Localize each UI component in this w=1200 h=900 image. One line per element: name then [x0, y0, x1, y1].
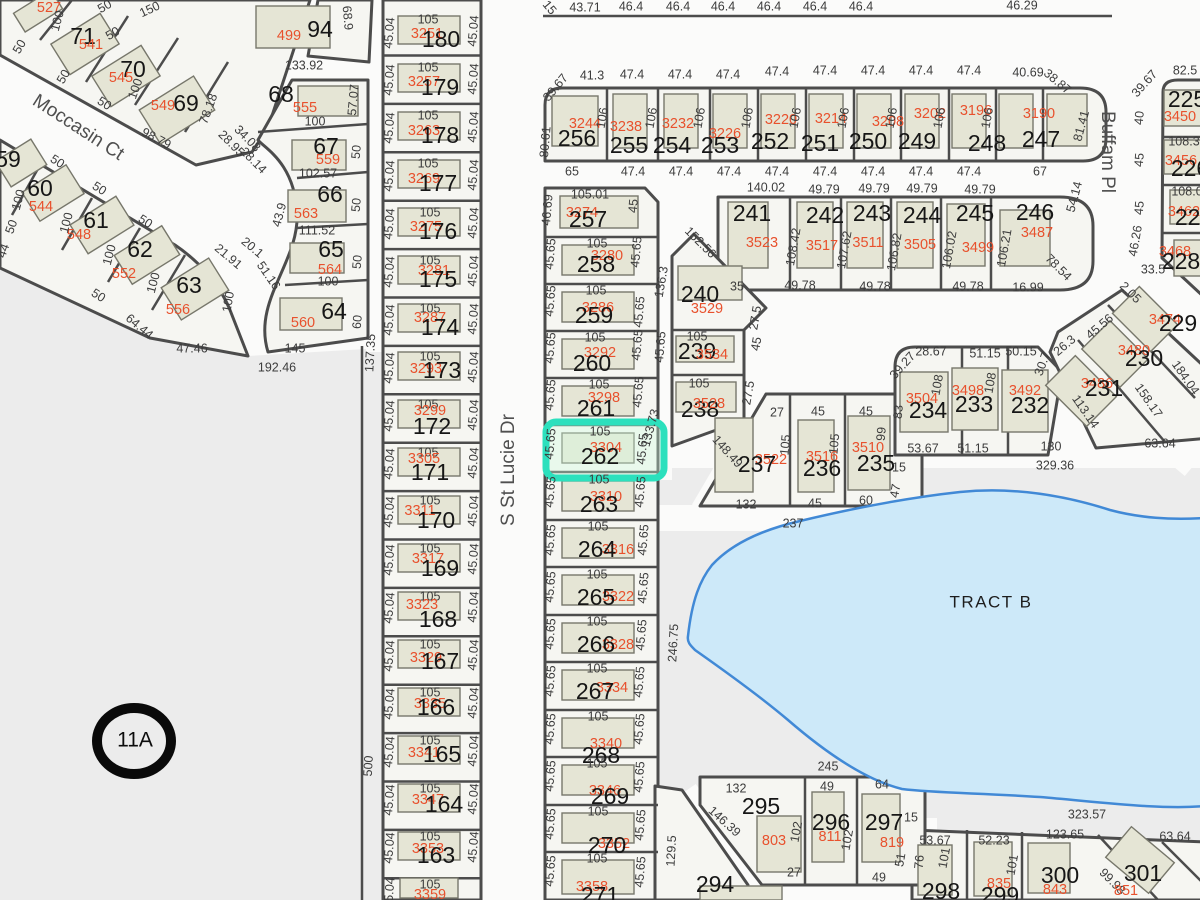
parcel-label-176[interactable]: 176: [419, 218, 457, 244]
parcel-label-174[interactable]: 174: [421, 314, 460, 340]
address-label-811: 811: [818, 829, 841, 845]
parcel-label-228[interactable]: 228: [1162, 248, 1200, 274]
dimension-label: 45.04: [465, 447, 482, 479]
address-label-560: 560: [291, 315, 315, 331]
dimension-label: 45.65: [635, 524, 652, 556]
street-name: Buffam Pl: [1097, 111, 1118, 193]
dimension-label: 45.65: [631, 761, 648, 793]
dimension-label: 45.04: [465, 831, 482, 863]
parcel-label-243[interactable]: 243: [853, 200, 891, 226]
address-label-563: 563: [294, 206, 318, 222]
parcel-label-173[interactable]: 173: [423, 357, 461, 383]
dimension-label: 47.4: [813, 164, 837, 178]
dimension-label: 49.78: [952, 279, 983, 293]
address-label-3528: 3528: [693, 396, 725, 412]
parcel-label-163[interactable]: 163: [417, 842, 455, 868]
dimension-label: 47.4: [861, 164, 885, 178]
dimension-label: 105: [587, 661, 608, 675]
dimension-label: 45.65: [542, 238, 559, 270]
dimension-label: 123.65: [1046, 827, 1084, 841]
dimension-label: 246.75: [665, 623, 681, 662]
address-label-819: 819: [880, 835, 904, 851]
parcel-label-247[interactable]: 247: [1022, 126, 1060, 152]
parcel-label-253[interactable]: 253: [701, 132, 739, 158]
dimension-label: 47.4: [909, 164, 933, 178]
parcel-label-255[interactable]: 255: [610, 132, 648, 158]
parcel-label-249[interactable]: 249: [898, 128, 936, 154]
dimension-label: 132: [736, 497, 757, 511]
parcel-label-170[interactable]: 170: [417, 507, 455, 533]
dimension-label: 45.04: [465, 15, 482, 47]
dimension-label: 129.5: [663, 835, 679, 867]
dimension-label: 47.4: [765, 64, 789, 78]
dimension-label: 46.4: [757, 0, 781, 13]
dimension-label: 45.04: [381, 448, 398, 480]
dimension-label: 45: [811, 404, 825, 418]
dimension-label: 33.5: [1141, 262, 1165, 276]
dimension-label: 45.04: [465, 543, 482, 575]
dimension-label: 45.04: [381, 160, 398, 192]
parcel-label-230[interactable]: 230: [1125, 345, 1163, 371]
dimension-label: 245: [818, 759, 839, 773]
parcel-label-60[interactable]: 60: [27, 175, 53, 201]
dimension-label: 51.15: [957, 441, 988, 455]
dimension-label: 192.46: [258, 360, 296, 374]
parcel-label-69[interactable]: 69: [173, 90, 199, 116]
parcel-label-265[interactable]: 265: [577, 584, 615, 610]
dimension-label: 76: [912, 854, 927, 869]
parcel-label-258[interactable]: 258: [577, 251, 615, 277]
address-label-3505: 3505: [904, 237, 936, 253]
parcel-label-231[interactable]: 231: [1085, 375, 1123, 401]
dimension-label: 16.99: [1012, 280, 1043, 294]
parcel-label-298[interactable]: 298: [922, 878, 960, 900]
dimension-label: 45.65: [631, 713, 648, 745]
parcel-label-257[interactable]: 257: [569, 206, 607, 232]
dimension-label: 41.3: [580, 68, 604, 82]
parcel-label-259[interactable]: 259: [575, 302, 613, 328]
dimension-label: 108.3: [1168, 134, 1199, 148]
dimension-label: 47.4: [957, 63, 981, 77]
dimension-label: 45.65: [632, 856, 649, 888]
dimension-label: 63.64: [1159, 829, 1190, 843]
parcel-label-178[interactable]: 178: [421, 122, 459, 148]
dimension-label: 105: [418, 156, 439, 170]
dimension-label: 45: [1132, 200, 1147, 215]
dimension-label: 105: [590, 424, 611, 438]
parcel-label-179[interactable]: 179: [421, 74, 459, 100]
parcel-label-235[interactable]: 235: [857, 450, 895, 476]
dimension-label: 100: [305, 114, 326, 128]
dimension-label: 45.04: [381, 784, 398, 816]
parcel-label-295[interactable]: 295: [742, 793, 780, 819]
dimension-label: 45.04: [381, 304, 398, 336]
dimension-label: 45.04: [381, 352, 398, 384]
dimension-label: 45.04: [465, 351, 482, 383]
dimension-label: 45.65: [542, 332, 559, 364]
address-label-3523: 3523: [746, 235, 778, 251]
dimension-label: 47.4: [957, 164, 981, 178]
dimension-label: 45.65: [542, 476, 559, 508]
address-label-541: 541: [79, 37, 103, 53]
dimension-label: 64: [875, 777, 889, 791]
parcel-label-266[interactable]: 266: [577, 631, 615, 657]
dimension-label: 47.4: [813, 63, 837, 77]
dimension-label: 45.65: [542, 428, 559, 460]
dimension-label: 67: [1033, 164, 1047, 178]
parcel-label-256[interactable]: 256: [558, 125, 596, 151]
dimension-label: 45.04: [465, 639, 482, 671]
dimension-label: 57.07: [345, 84, 362, 116]
dimension-label: 105: [588, 804, 609, 818]
dimension-label: 45: [808, 496, 822, 510]
dimension-label: 60: [350, 314, 365, 329]
dimension-label: 45.65: [631, 296, 648, 328]
parcel-map-viewport[interactable]: 1543.7146.446.446.446.446.446.446.295277…: [0, 0, 1200, 900]
dimension-label: 46.4: [803, 0, 827, 13]
dimension-label: 28.67: [915, 344, 946, 358]
dimension-label: 45.65: [633, 619, 650, 651]
dimension-label: 45.65: [542, 855, 559, 887]
dimension-label: 45.65: [628, 236, 645, 268]
address-label-499: 499: [277, 28, 301, 44]
dimension-label: 500: [361, 755, 376, 777]
dimension-label: 45.65: [542, 665, 559, 697]
dimension-label: 35: [730, 279, 744, 293]
parcel-label-166[interactable]: 166: [417, 694, 455, 720]
parcel-label-250[interactable]: 250: [849, 128, 887, 154]
dimension-label: 45: [1132, 152, 1147, 167]
dimension-label: 49.79: [964, 182, 995, 196]
dimension-label: 137.35: [362, 333, 378, 372]
dimension-label: 51.15: [969, 346, 1000, 360]
address-label-843: 843: [1043, 882, 1067, 898]
dimension-label: 45.04: [381, 400, 398, 432]
parcel-label-264[interactable]: 264: [578, 536, 617, 562]
parcel-label-234[interactable]: 234: [909, 397, 948, 423]
parcel-label-267[interactable]: 267: [576, 678, 614, 704]
dimension-label: 45.04: [465, 783, 482, 815]
parcel-label-241[interactable]: 241: [733, 200, 771, 226]
open-land-area: [0, 268, 383, 900]
dimension-label: 45.04: [465, 111, 482, 143]
dimension-label: 45.04: [465, 303, 482, 335]
address-label-3359: 3359: [414, 887, 446, 900]
dimension-label: 63.64: [1144, 436, 1175, 450]
parcel-label-180[interactable]: 180: [422, 26, 460, 52]
dimension-label: 102.57: [299, 166, 337, 180]
dimension-label: 43.71: [569, 0, 600, 14]
parcel-label-169[interactable]: 169: [421, 555, 459, 581]
dimension-label: 68.9: [340, 5, 356, 31]
parcel-label-226[interactable]: 226: [1171, 155, 1200, 181]
parcel-label-62[interactable]: 62: [127, 236, 153, 262]
dimension-label: 45.65: [542, 713, 559, 745]
dimension-label: 47.4: [621, 164, 645, 178]
dimension-label: 27: [787, 865, 801, 879]
dimension-label: 45.65: [542, 760, 559, 792]
dimension-label: 45.04: [381, 832, 398, 864]
dimension-label: 47.4: [668, 67, 692, 81]
parcel-label-94[interactable]: 94: [307, 16, 333, 42]
dimension-label: 133.92: [285, 58, 323, 72]
dimension-label: 105: [589, 472, 610, 486]
dimension-label: 45.65: [652, 331, 669, 363]
dimension-label: 46.4: [849, 0, 873, 13]
dimension-label: 45.65: [635, 572, 652, 604]
dimension-label: 100: [318, 274, 339, 288]
dimension-label: 53.67: [907, 441, 938, 455]
parcel-label-172[interactable]: 172: [413, 413, 451, 439]
dimension-label: 45.04: [381, 877, 398, 900]
dimension-label: 45.04: [465, 63, 482, 95]
dimension-label: 40.69: [1012, 65, 1043, 79]
parcel-label-254[interactable]: 254: [653, 132, 692, 158]
dimension-label: 45.04: [465, 159, 482, 191]
parcel-label-248[interactable]: 248: [968, 130, 1006, 156]
parcel-label-245[interactable]: 245: [956, 200, 994, 226]
dimension-label: 45.04: [381, 256, 398, 288]
address-label-851: 851: [1114, 883, 1138, 899]
dimension-label: 105: [587, 614, 608, 628]
dimension-label: 45.65: [542, 524, 559, 556]
dimension-label: 40: [1132, 110, 1147, 125]
dimension-label: 145: [285, 341, 306, 355]
dimension-label: 50: [350, 254, 365, 269]
tract-label: TRACT B: [950, 592, 1033, 611]
section-marker: 11A: [117, 729, 153, 752]
dimension-label: 50.15: [1005, 344, 1036, 358]
dimension-label: 105: [588, 709, 609, 723]
dimension-label: 105: [418, 12, 439, 26]
dimension-label: 140.02: [747, 180, 785, 194]
dimension-label: 45.04: [465, 591, 482, 623]
dimension-label: 80.61: [537, 126, 554, 158]
address-label-3487: 3487: [1021, 225, 1053, 241]
dimension-label: 60: [859, 493, 873, 507]
dimension-label: 329.36: [1036, 458, 1074, 472]
parcel-label-242[interactable]: 242: [806, 202, 844, 228]
dimension-label: 49.79: [858, 181, 889, 195]
dimension-label: 47.4: [717, 164, 741, 178]
dimension-label: 108.0: [1171, 184, 1200, 198]
dimension-label: 47.46: [176, 341, 207, 355]
dimension-label: 47: [887, 483, 903, 499]
parcel-label-171[interactable]: 171: [411, 459, 449, 485]
dimension-label: 105: [588, 519, 609, 533]
dimension-label: 45: [748, 336, 764, 352]
parcel-label-66[interactable]: 66: [317, 181, 343, 207]
address-label-556: 556: [166, 302, 190, 318]
dimension-label: 45.04: [465, 495, 482, 527]
dimension-label: 82.5: [1173, 63, 1197, 77]
dimension-label: 323.57: [1068, 807, 1106, 821]
address-label-3534: 3534: [696, 347, 728, 363]
dimension-label: 47.4: [765, 164, 789, 178]
dimension-label: 45.65: [542, 571, 559, 603]
dimension-label: 52.23: [978, 833, 1009, 847]
dimension-label: 45.04: [381, 592, 398, 624]
parcel-label-262[interactable]: 262: [581, 443, 619, 469]
dimension-label: 45.04: [465, 687, 482, 719]
dimension-label: 45.04: [381, 112, 398, 144]
dimension-label: 105: [587, 756, 608, 770]
dimension-label: 105: [587, 851, 608, 865]
dimension-label: 45: [626, 198, 641, 213]
dimension-label: 45.04: [381, 736, 398, 768]
parcel-label-236[interactable]: 236: [803, 455, 841, 481]
dimension-label: 45.04: [381, 17, 398, 49]
parcel-label-297[interactable]: 297: [865, 809, 903, 835]
dimension-label: 51: [892, 852, 908, 868]
dimension-label: 46.4: [666, 0, 690, 13]
parcel-label-65[interactable]: 65: [318, 236, 344, 262]
parcel-label-252[interactable]: 252: [751, 128, 789, 154]
address-label-3511: 3511: [852, 235, 883, 251]
parcel-label-263[interactable]: 263: [580, 491, 618, 517]
parcel-label-299[interactable]: 299: [981, 882, 1019, 900]
dimension-label: 50: [349, 144, 364, 159]
dimension-label: 105: [689, 376, 710, 390]
dimension-label: 45.65: [542, 285, 559, 317]
dimension-label: 46.69: [539, 194, 556, 226]
address-label-549: 549: [151, 98, 175, 114]
address-label-3499: 3499: [962, 240, 994, 256]
dimension-label: 46.4: [619, 0, 643, 13]
dimension-label: 47.4: [861, 63, 885, 77]
dimension-label: 83: [891, 404, 906, 419]
dimension-label: 15: [892, 460, 906, 474]
dimension-label: 45.04: [465, 399, 482, 431]
parcel-label-271[interactable]: 271: [581, 882, 619, 900]
dimension-label: 45.65: [632, 809, 649, 841]
dimension-label: 45.04: [465, 207, 482, 239]
address-label-803: 803: [762, 833, 786, 849]
parcel-label-229[interactable]: 229: [1159, 310, 1197, 336]
dimension-label: 45.65: [542, 618, 559, 650]
dimension-label: 45.65: [632, 476, 649, 508]
parcel-label-177[interactable]: 177: [419, 170, 457, 196]
dimension-label: 49.79: [906, 181, 937, 195]
parcel-label-64[interactable]: 64: [321, 298, 347, 324]
dimension-label: 130: [1041, 439, 1062, 453]
parcel-label-260[interactable]: 260: [573, 350, 611, 376]
dimension-label: 105: [585, 330, 606, 344]
dimension-label: 45: [859, 404, 873, 418]
street-name: S St Lucie Dr: [498, 413, 519, 526]
dimension-label: 27: [770, 405, 784, 419]
parcel-label-68[interactable]: 68: [268, 81, 294, 107]
address-label-3529: 3529: [691, 301, 723, 317]
parcel-label-246[interactable]: 246: [1016, 199, 1054, 225]
parcel-label-63[interactable]: 63: [176, 272, 202, 298]
dimension-label: 49: [872, 870, 886, 884]
parcel-label-227[interactable]: 227: [1175, 204, 1200, 230]
dimension-label: 46.4: [711, 0, 735, 13]
dimension-label: 45.04: [381, 688, 398, 720]
parcel-label-164[interactable]: 164: [425, 791, 464, 817]
dimension-label: 47.4: [716, 67, 740, 81]
dimension-label: 45.65: [631, 666, 648, 698]
dimension-label: 105: [418, 60, 439, 74]
dimension-label: 45.04: [381, 496, 398, 528]
dimension-label: 49.78: [784, 278, 815, 292]
dimension-label: 45.04: [381, 640, 398, 672]
parcel-label-237[interactable]: 237: [738, 451, 776, 477]
dimension-label: 105: [587, 567, 608, 581]
parcel-label-244[interactable]: 244: [903, 202, 942, 228]
dimension-label: 45.04: [381, 64, 398, 96]
dimension-label: 237: [783, 516, 804, 530]
parcel-label-165[interactable]: 165: [423, 741, 461, 767]
dimension-label: 45.04: [465, 735, 482, 767]
parcel-label-251[interactable]: 251: [801, 130, 839, 156]
dimension-label: 46.29: [1006, 0, 1037, 12]
dimension-label: 45.04: [381, 208, 398, 240]
address-label-3190: 3190: [1023, 106, 1055, 122]
address-label-544: 544: [29, 199, 53, 215]
parcel-label-261[interactable]: 261: [577, 395, 615, 421]
parcel-label-59[interactable]: 59: [0, 146, 21, 172]
address-label-552: 552: [112, 266, 136, 282]
parcel-label-167[interactable]: 167: [421, 648, 459, 674]
dimension-label: 47.4: [909, 63, 933, 77]
dimension-label: 15: [904, 810, 918, 824]
dimension-label: 49.78: [859, 279, 890, 293]
dimension-label: 105: [418, 108, 439, 122]
dimension-label: 45.65: [542, 808, 559, 840]
parcel-map[interactable]: 1543.7146.446.446.446.446.446.446.295277…: [0, 0, 1200, 900]
dimension-label: 53.67: [919, 833, 950, 847]
parcel-label-168[interactable]: 168: [419, 606, 457, 632]
dimension-label: 45.65: [542, 379, 559, 411]
dimension-label: 49: [820, 779, 834, 793]
dimension-label: 47.4: [669, 164, 693, 178]
dimension-label: 45.65: [629, 329, 646, 361]
parcel-label-233[interactable]: 233: [955, 391, 993, 417]
dimension-label: 105.01: [571, 187, 609, 201]
parcel-label-225[interactable]: 225: [1168, 86, 1200, 112]
dimension-label: 47.4: [620, 67, 644, 81]
parcel-label-232[interactable]: 232: [1011, 392, 1049, 418]
dimension-label: 49.79: [808, 182, 839, 196]
address-label-3517: 3517: [806, 238, 838, 254]
dimension-label: 45.65: [630, 376, 647, 408]
parcel-label-294[interactable]: 294: [696, 871, 735, 897]
dimension-label: 105: [586, 283, 607, 297]
dimension-label: 65: [565, 164, 579, 178]
address-label-3232: 3232: [662, 116, 694, 132]
dimension-label: 45.04: [465, 255, 482, 287]
dimension-label: 50: [349, 197, 364, 212]
parcel-label-175[interactable]: 175: [419, 266, 457, 292]
dimension-label: 45.04: [381, 544, 398, 576]
